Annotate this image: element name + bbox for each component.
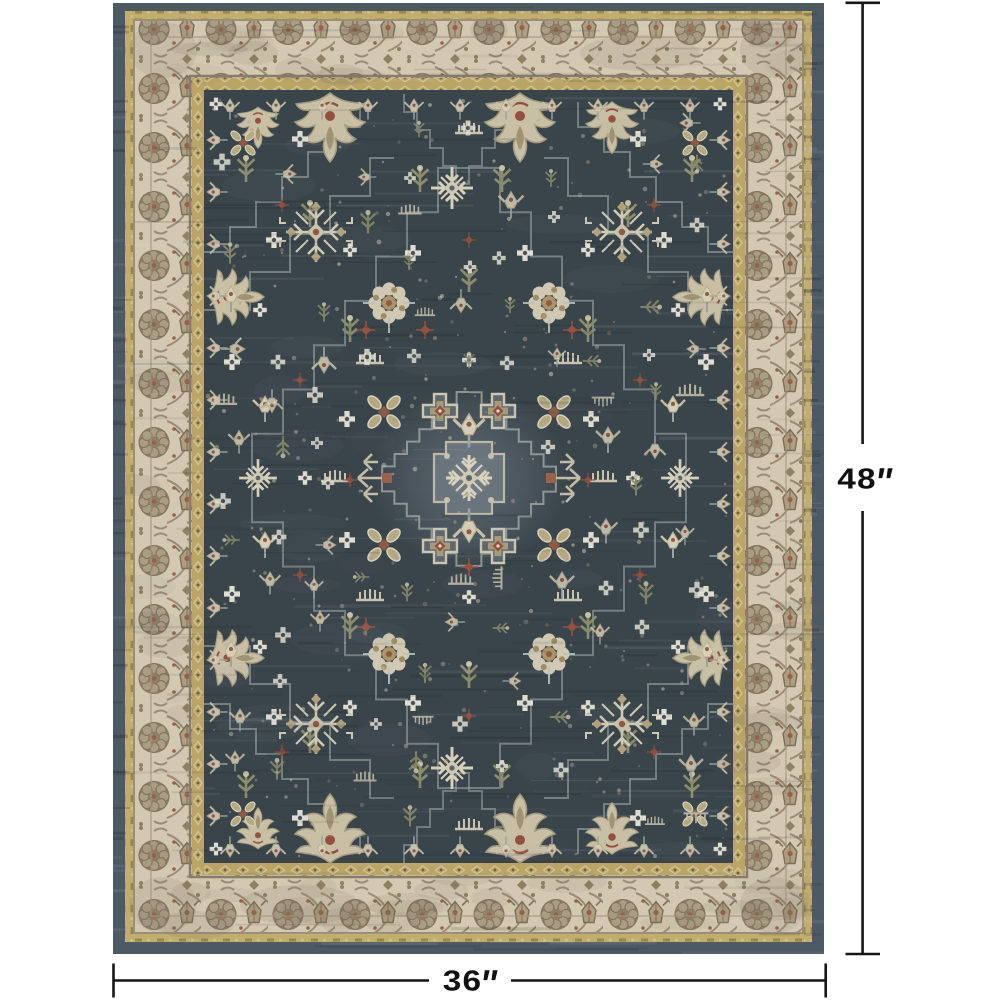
svg-text:48: 48: [837, 463, 876, 495]
svg-text:36: 36: [443, 965, 482, 997]
